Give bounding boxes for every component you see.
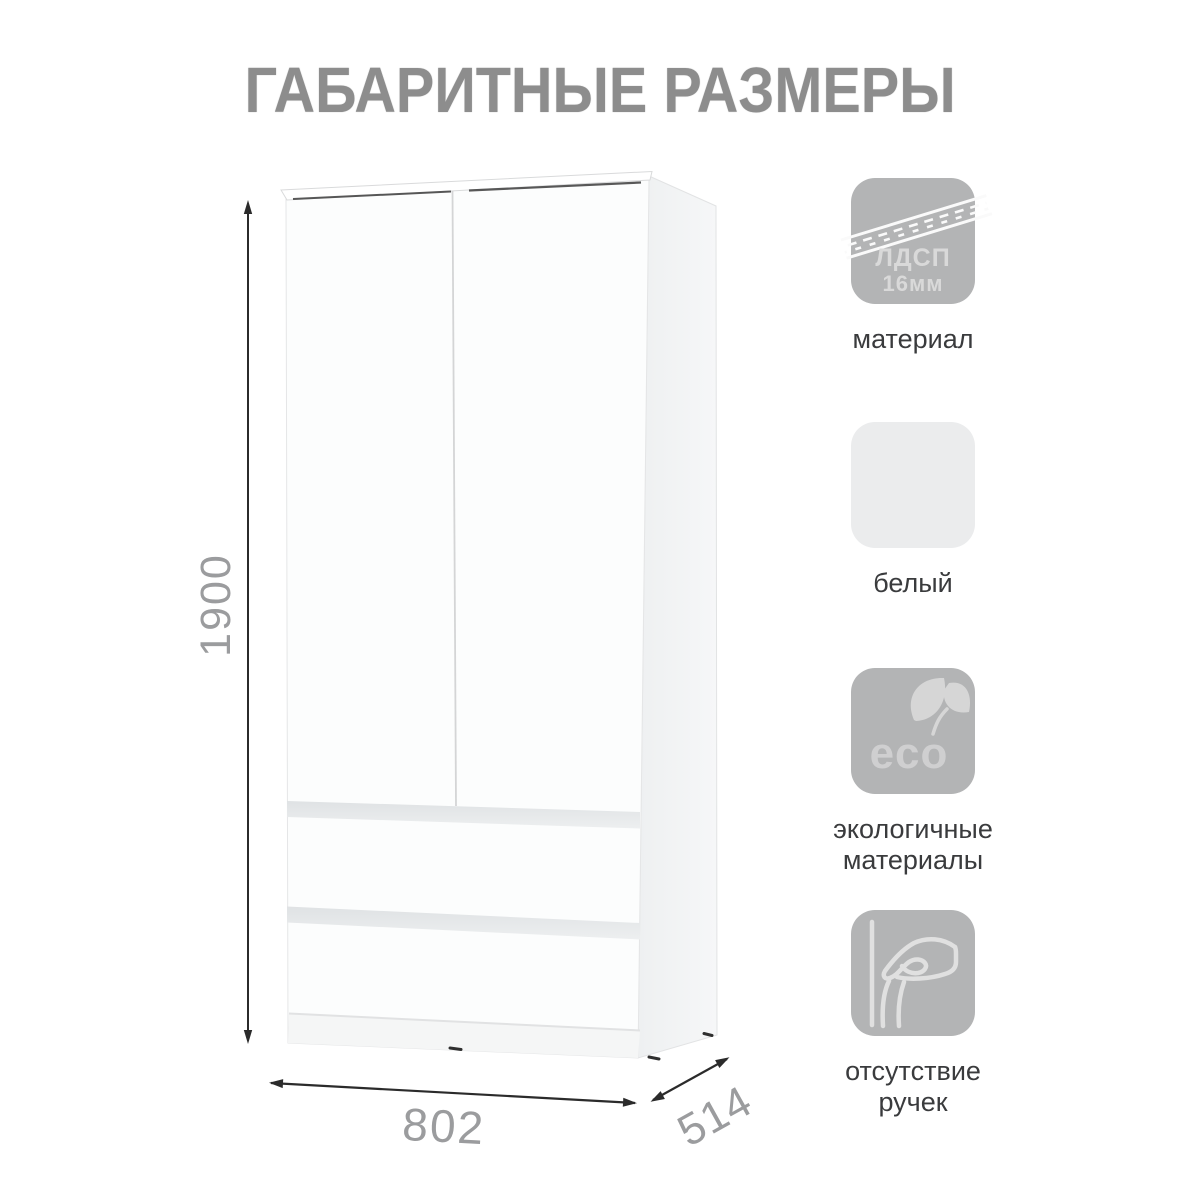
- chipboard-edge-icon: ЛДСП 16мм: [851, 178, 975, 304]
- white-color-swatch: [851, 422, 975, 548]
- product-dimensions-page: ГАБАРИТНЫЕ РАЗМЕРЫ: [0, 0, 1200, 1200]
- width-dimension: 802: [269, 1079, 637, 1154]
- depth-dimension-label: 514: [670, 1076, 760, 1156]
- feature-material-label: материал: [798, 324, 1028, 355]
- arrowhead-up: [244, 200, 252, 214]
- feature-no-handles: отсутствие ручек: [798, 910, 1028, 1118]
- eco-leaves-icon: eco: [851, 668, 975, 794]
- arrowhead-depth-near: [651, 1091, 665, 1102]
- leaf-left: [911, 678, 945, 721]
- width-dimension-label: 802: [401, 1098, 486, 1154]
- feature-color-label: белый: [798, 568, 1028, 599]
- eco-icon-text: eco: [870, 729, 949, 778]
- finger-line-1: [883, 981, 889, 1026]
- chipboard-icon-text-1: ЛДСП: [875, 244, 950, 272]
- finger-line-2: [899, 982, 904, 1026]
- feature-eco-label: экологичные материалы: [798, 814, 1028, 876]
- height-dimension-label: 1900: [192, 553, 240, 657]
- chipboard-icon-text-2: 16мм: [882, 271, 943, 296]
- arrowhead-down: [244, 1030, 252, 1044]
- depth-dimension: 514: [651, 1057, 761, 1156]
- hand-grip-icon: [851, 910, 975, 1036]
- height-dimension: 1900: [192, 200, 252, 1044]
- arrowhead-right: [623, 1098, 637, 1107]
- feature-color: белый: [798, 422, 1028, 599]
- feature-eco: eco экологичные материалы: [798, 668, 1028, 876]
- feature-material: ЛДСП 16мм материал: [798, 178, 1028, 355]
- wardrobe-diagram: 1900 802 514: [0, 0, 760, 1200]
- feature-no-handles-label: отсутствие ручек: [798, 1056, 1028, 1118]
- features-column: ЛДСП 16мм материал белый: [798, 0, 1028, 1200]
- arrowhead-depth-far: [715, 1057, 729, 1068]
- wardrobe-side-panel: [638, 176, 717, 1058]
- arrowhead-left: [269, 1079, 283, 1088]
